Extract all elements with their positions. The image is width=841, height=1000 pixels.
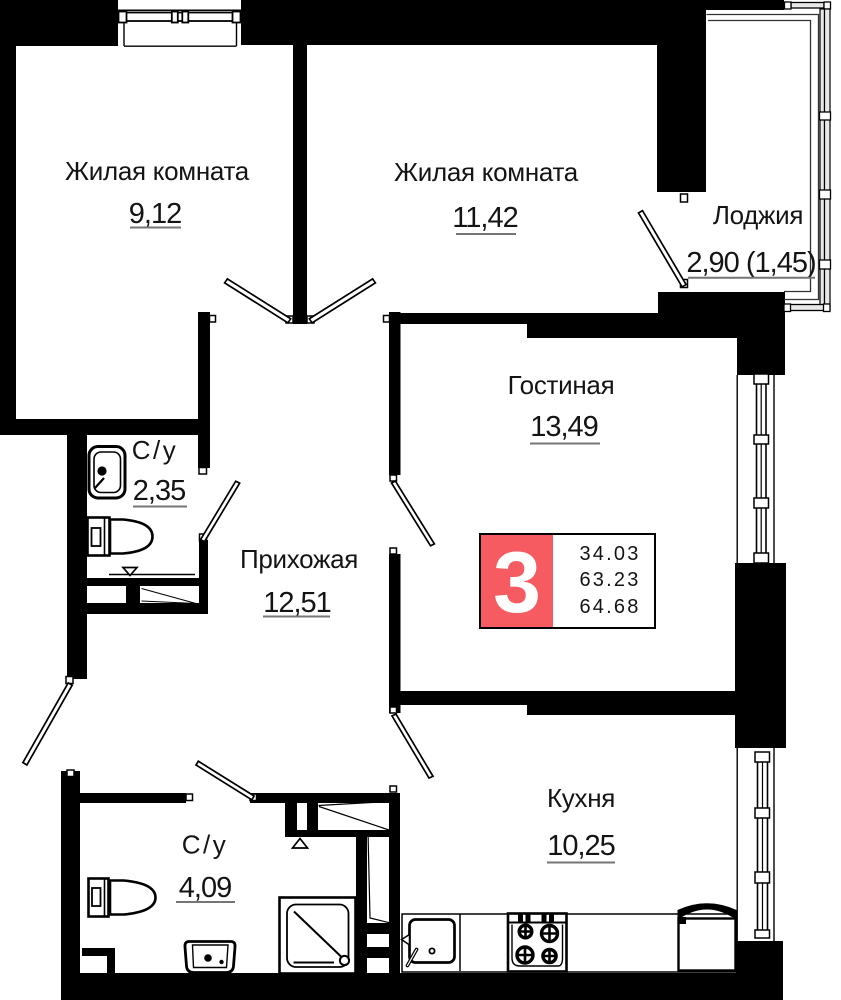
svg-text:4,09: 4,09 [179, 872, 231, 904]
svg-text:С/у: С/у [182, 830, 229, 860]
svg-text:9,12: 9,12 [129, 198, 181, 230]
svg-text:3: 3 [493, 535, 541, 631]
svg-text:Гостиная: Гостиная [508, 370, 615, 400]
svg-text:2,90 (1,45): 2,90 (1,45) [686, 247, 815, 279]
svg-text:10,25: 10,25 [547, 830, 615, 862]
svg-text:Жилая комната: Жилая комната [65, 156, 250, 186]
svg-text:Лоджия: Лоджия [713, 200, 803, 230]
svg-text:Кухня: Кухня [547, 783, 615, 813]
svg-text:13,49: 13,49 [530, 411, 598, 443]
svg-text:64.68: 64.68 [579, 596, 640, 618]
svg-text:Прихожая: Прихожая [240, 544, 358, 574]
svg-text:Жилая комната: Жилая комната [394, 157, 579, 187]
svg-text:2,35: 2,35 [133, 475, 185, 507]
svg-text:12,51: 12,51 [263, 587, 331, 619]
svg-text:С/у: С/у [132, 435, 179, 465]
svg-text:34.03: 34.03 [579, 543, 640, 565]
svg-text:11,42: 11,42 [452, 202, 517, 234]
svg-text:63.23: 63.23 [579, 569, 640, 591]
